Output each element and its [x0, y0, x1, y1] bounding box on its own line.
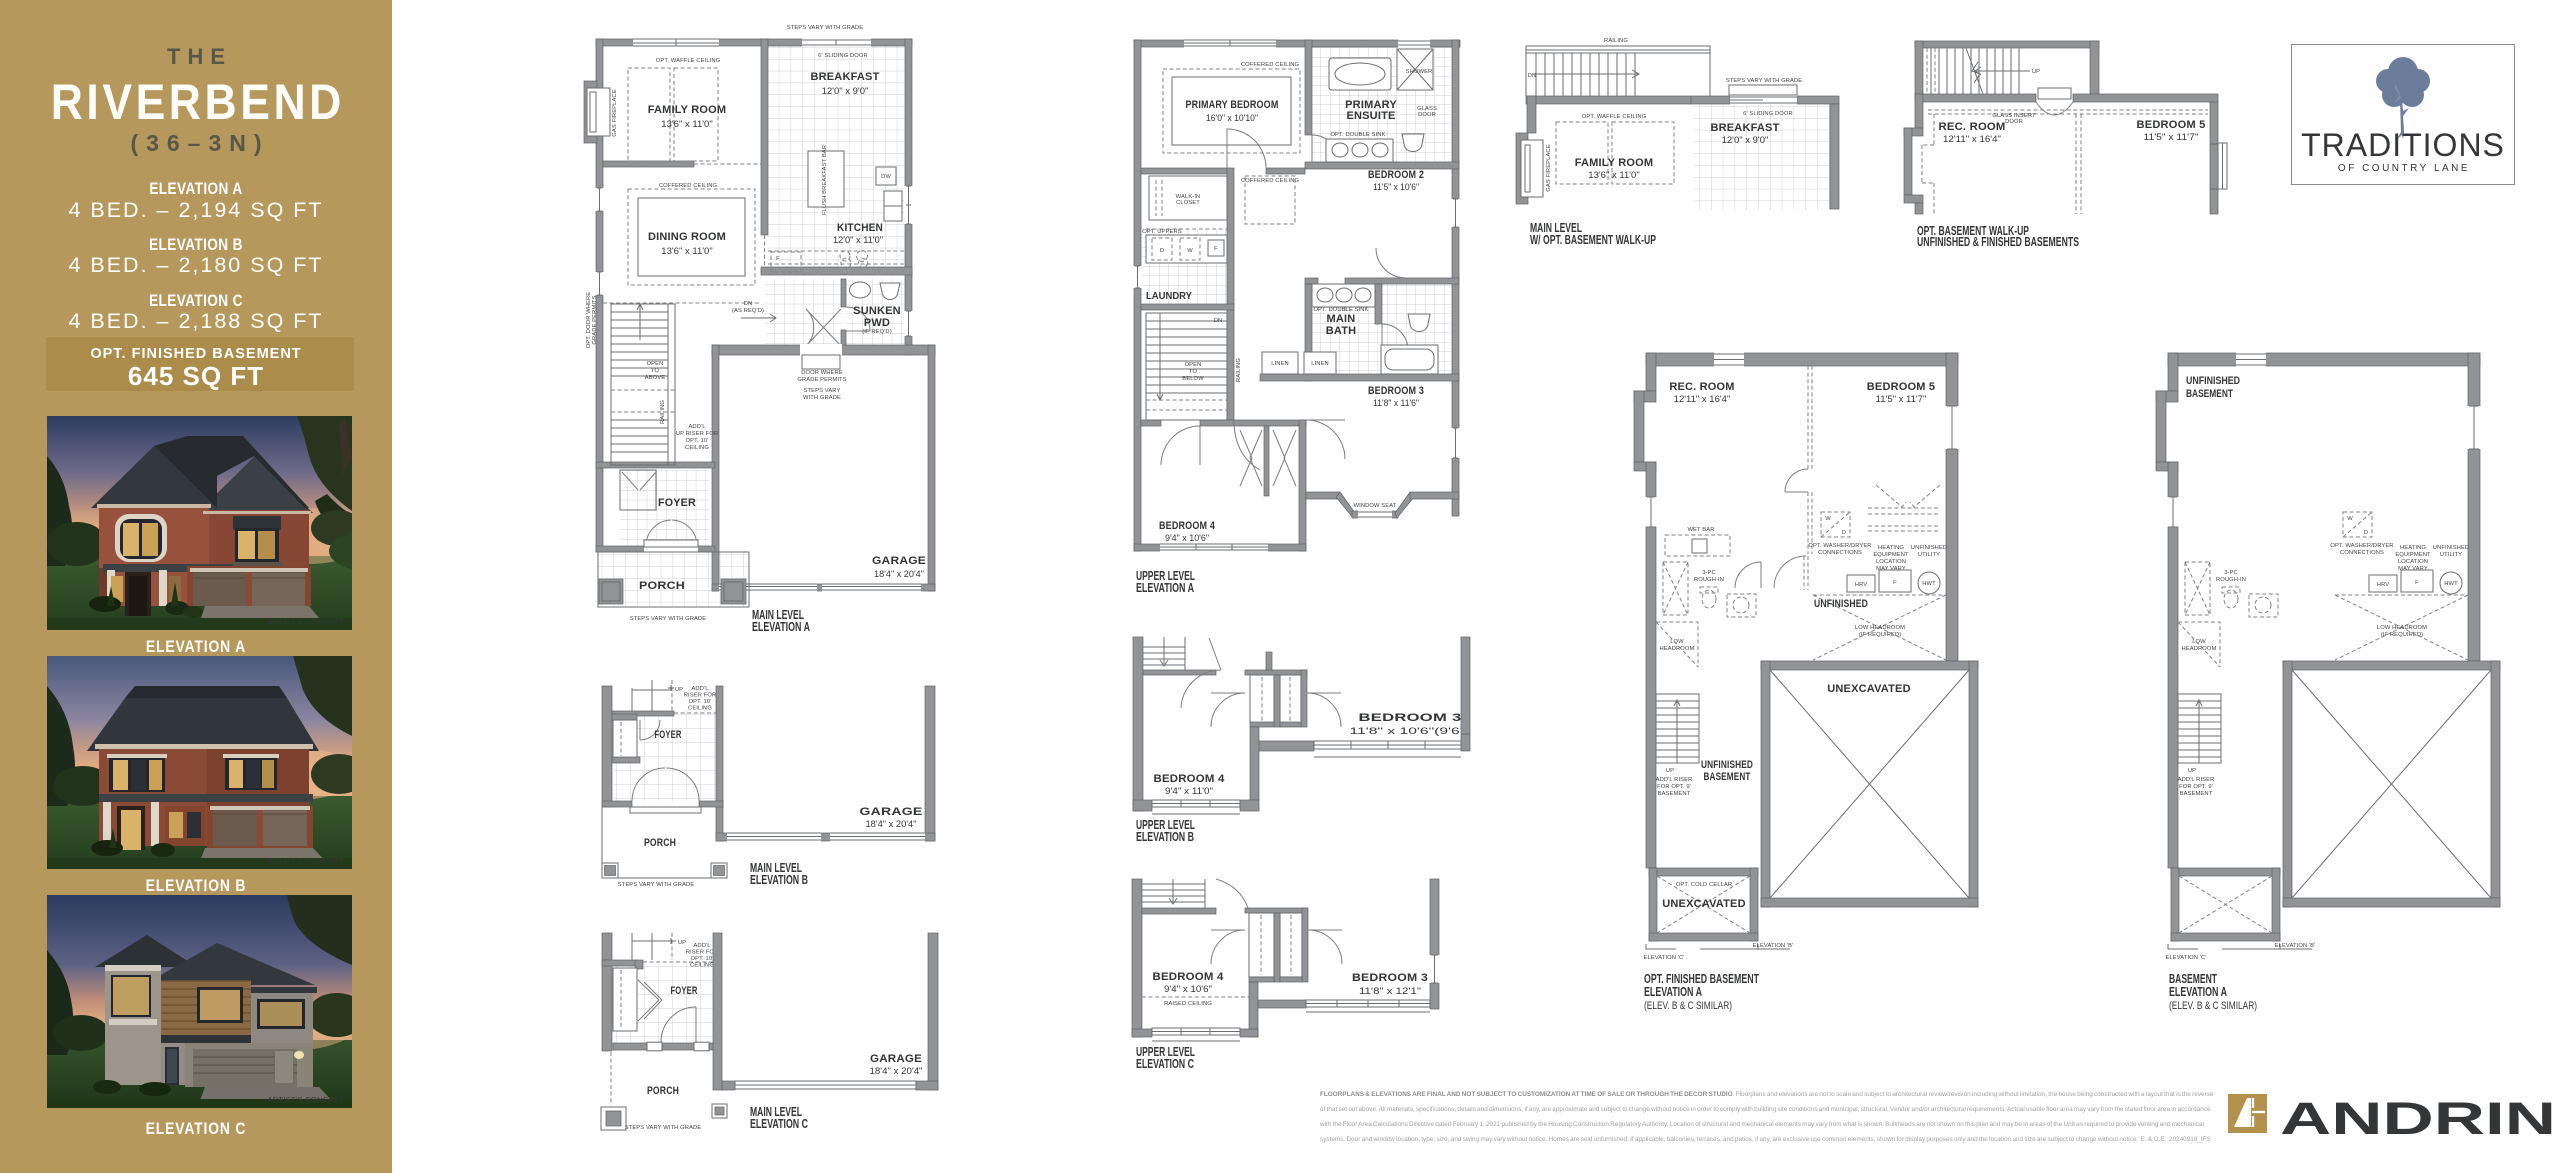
- svg-text:ARTIST'S CONCEPT: ARTIST'S CONCEPT: [267, 856, 344, 865]
- svg-text:FOYER: FOYER: [658, 497, 696, 509]
- svg-text:ELEVATION B: ELEVATION B: [1136, 829, 1194, 844]
- svg-text:CEILING: CEILING: [685, 445, 709, 451]
- svg-text:COFFERED CEILING: COFFERED CEILING: [1241, 178, 1300, 184]
- svg-text:SHOWER: SHOWER: [1406, 69, 1433, 75]
- svg-text:OPT. 10': OPT. 10': [689, 699, 712, 705]
- svg-text:(IF REQUIRED): (IF REQUIRED): [1859, 632, 1902, 638]
- svg-text:TRADITIONS: TRADITIONS: [2301, 127, 2505, 163]
- svg-text:OPT. WASHER/DRYER: OPT. WASHER/DRYER: [1808, 543, 1871, 549]
- svg-text:F: F: [1893, 580, 1897, 586]
- svg-text:ELEVATION A: ELEVATION A: [2169, 984, 2227, 999]
- svg-text:EQUIPMENT: EQUIPMENT: [1873, 552, 1909, 558]
- svg-text:6' SLIDING DOOR: 6' SLIDING DOOR: [1743, 111, 1793, 117]
- svg-text:13'6" x 11'0": 13'6" x 11'0": [661, 246, 712, 257]
- svg-text:OF COUNTRY LANE: OF COUNTRY LANE: [2338, 163, 2470, 174]
- svg-text:ADD'L: ADD'L: [691, 686, 709, 692]
- svg-text:ELEVATION A: ELEVATION A: [752, 619, 810, 634]
- svg-text:W: W: [1187, 248, 1193, 254]
- svg-text:ARTIST'S CONCEPT: ARTIST'S CONCEPT: [267, 617, 344, 626]
- svg-text:RAILING: RAILING: [1236, 358, 1242, 382]
- svg-text:W: W: [1825, 516, 1831, 522]
- svg-text:TO: TO: [651, 368, 660, 374]
- svg-text:ELEVATION A: ELEVATION A: [1136, 580, 1194, 595]
- svg-text:OPT. 10': OPT. 10': [691, 956, 714, 962]
- svg-text:GRADE PERMITS: GRADE PERMITS: [592, 295, 598, 344]
- svg-text:DOOR: DOOR: [1418, 112, 1436, 118]
- svg-text:9'4" x 10'6": 9'4" x 10'6": [1165, 533, 1209, 544]
- svg-text:11'5" x 11'7": 11'5" x 11'7": [1876, 394, 1927, 405]
- svg-text:COFFERED CEILING: COFFERED CEILING: [1241, 62, 1300, 68]
- svg-text:UP: UP: [1666, 768, 1674, 774]
- svg-text:RAILING: RAILING: [660, 400, 666, 424]
- svg-text:PRIMARY BEDROOM: PRIMARY BEDROOM: [1186, 99, 1279, 111]
- svg-text:ELEVATION B: ELEVATION B: [750, 872, 808, 887]
- svg-text:ADD'L RISER: ADD'L RISER: [1656, 777, 1693, 783]
- svg-text:LAUNDRY: LAUNDRY: [1146, 291, 1192, 302]
- svg-text:BASEMENT: BASEMENT: [2186, 388, 2233, 400]
- svg-text:11'8" x 10'6"(9'6"): 11'8" x 10'6"(9'6"): [1350, 726, 1471, 737]
- svg-text:9'4" x 11'0": 9'4" x 11'0": [1165, 786, 1213, 797]
- svg-text:RAISED CEILING: RAISED CEILING: [1164, 1001, 1212, 1007]
- svg-text:UP RISER FOR: UP RISER FOR: [676, 431, 718, 437]
- svg-text:HEADROOM: HEADROOM: [1660, 646, 1695, 652]
- svg-text:STEPS VARY WITH GRADE: STEPS VARY WITH GRADE: [625, 1125, 702, 1131]
- svg-text:ROUGH-IN: ROUGH-IN: [1694, 577, 1724, 583]
- svg-text:STEPS VARY WITH GRADE: STEPS VARY WITH GRADE: [630, 616, 707, 622]
- svg-text:FOYER: FOYER: [671, 985, 698, 997]
- svg-text:11'5" x 11'7": 11'5" x 11'7": [2144, 132, 2199, 143]
- svg-text:GAS FIREPLACE: GAS FIREPLACE: [612, 89, 618, 136]
- svg-text:18'4" x 20'4": 18'4" x 20'4": [874, 569, 924, 580]
- svg-text:CONNECTIONS: CONNECTIONS: [1818, 550, 1862, 556]
- svg-text:OPT. 10': OPT. 10': [686, 438, 709, 444]
- svg-text:CEILING: CEILING: [688, 706, 712, 712]
- svg-text:ENSUITE: ENSUITE: [1346, 110, 1395, 122]
- svg-text:UTILITY: UTILITY: [1918, 552, 1940, 558]
- svg-text:12'0" x 9'0": 12'0" x 9'0": [822, 86, 869, 97]
- svg-text:ABOVE: ABOVE: [645, 375, 666, 381]
- svg-text:RISER FOR: RISER FOR: [684, 693, 716, 699]
- svg-text:GARAGE: GARAGE: [872, 555, 926, 567]
- svg-text:OPT. UPPERS: OPT. UPPERS: [1142, 229, 1181, 235]
- svg-text:HWT: HWT: [1922, 581, 1936, 587]
- svg-text:GRADE PERMITS: GRADE PERMITS: [797, 377, 846, 383]
- svg-text:DINING ROOM: DINING ROOM: [648, 231, 726, 243]
- svg-text:DN: DN: [1528, 73, 1537, 79]
- svg-text:(ELEV. B & C SIMILAR): (ELEV. B & C SIMILAR): [2169, 1000, 2257, 1012]
- svg-text:FAMILY ROOM: FAMILY ROOM: [1575, 157, 1654, 169]
- svg-text:12'11" x 16'4": 12'11" x 16'4": [1943, 134, 2001, 145]
- svg-text:9'4" x 10'6": 9'4" x 10'6": [1164, 984, 1212, 995]
- svg-text:GAS FIREPLACE: GAS FIREPLACE: [1546, 144, 1552, 191]
- svg-text:GARAGE: GARAGE: [870, 1053, 922, 1065]
- svg-text:ADD'L: ADD'L: [693, 943, 711, 949]
- svg-text:CEILING: CEILING: [690, 963, 714, 969]
- svg-text:UP: UP: [678, 940, 686, 946]
- svg-text:BREAKFAST: BREAKFAST: [810, 71, 879, 83]
- svg-text:LOW: LOW: [1670, 639, 1684, 645]
- svg-text:FLUSH BREAKFAST BAR: FLUSH BREAKFAST BAR: [822, 145, 828, 215]
- svg-text:OPT. DOUBLE SINK: OPT. DOUBLE SINK: [1330, 132, 1385, 138]
- svg-text:SUNKEN: SUNKEN: [853, 305, 901, 317]
- svg-text:HRV: HRV: [1855, 582, 1867, 588]
- svg-text:STEPS VARY WITH GRADE: STEPS VARY WITH GRADE: [618, 882, 695, 888]
- svg-text:DOOR: DOOR: [2005, 119, 2023, 125]
- svg-text:OPEN: OPEN: [1185, 362, 1202, 368]
- svg-text:18'4" x 20'4": 18'4" x 20'4": [870, 1066, 923, 1077]
- svg-text:ADD'L: ADD'L: [688, 424, 706, 430]
- svg-text:12'0" x 11'0": 12'0" x 11'0": [833, 235, 883, 246]
- svg-text:TO: TO: [1189, 369, 1198, 375]
- svg-text:F: F: [776, 256, 780, 262]
- svg-text:ELEVATION C: ELEVATION C: [1136, 1056, 1194, 1071]
- svg-text:FOR OPT. 9': FOR OPT. 9': [1657, 784, 1691, 790]
- svg-text:FAMILY ROOM: FAMILY ROOM: [648, 104, 727, 116]
- svg-text:DN: DN: [1214, 318, 1223, 324]
- svg-text:D: D: [1160, 248, 1164, 254]
- svg-text:UNFINISHED: UNFINISHED: [1701, 759, 1753, 771]
- svg-text:BASEMENT: BASEMENT: [1704, 771, 1751, 783]
- svg-text:BEDROOM 3: BEDROOM 3: [1352, 972, 1428, 984]
- svg-text:BEDROOM 4: BEDROOM 4: [1159, 520, 1216, 532]
- svg-text:FOYER: FOYER: [655, 729, 682, 741]
- svg-text:BATH: BATH: [1326, 325, 1357, 337]
- svg-text:BEDROOM 2: BEDROOM 2: [1368, 169, 1424, 181]
- svg-text:ELEVATION A: ELEVATION A: [1644, 984, 1702, 999]
- svg-text:UP: UP: [675, 687, 683, 693]
- svg-text:BEDROOM 4: BEDROOM 4: [1154, 773, 1226, 785]
- svg-text:W/ OPT. BASEMENT WALK-UP: W/ OPT. BASEMENT WALK-UP: [1530, 232, 1656, 247]
- svg-text:16'0" x 10'10": 16'0" x 10'10": [1206, 113, 1258, 124]
- svg-text:RAILING: RAILING: [1604, 38, 1628, 44]
- svg-text:LINEN: LINEN: [1311, 361, 1329, 367]
- svg-text:BREAKFAST: BREAKFAST: [1710, 122, 1779, 134]
- svg-text:REC. ROOM: REC. ROOM: [1669, 381, 1734, 393]
- svg-text:BELOW: BELOW: [1182, 376, 1204, 382]
- svg-text:UNEXCAVATED: UNEXCAVATED: [1662, 898, 1745, 910]
- svg-text:18'4" x 20'4": 18'4" x 20'4": [866, 819, 917, 830]
- svg-text:OPEN: OPEN: [647, 361, 664, 367]
- svg-text:UNEXCAVATED: UNEXCAVATED: [1827, 683, 1910, 695]
- svg-text:ELEVATION 'C': ELEVATION 'C': [1644, 955, 1685, 961]
- svg-text:PWD: PWD: [864, 317, 890, 329]
- svg-text:STEPS VARY WITH GRADE: STEPS VARY WITH GRADE: [787, 25, 864, 31]
- svg-text:CLOSET: CLOSET: [1176, 200, 1200, 206]
- svg-text:GARAGE: GARAGE: [860, 806, 923, 818]
- svg-text:HEATING: HEATING: [1878, 545, 1904, 551]
- svg-text:11'8" x 11'6": 11'8" x 11'6": [1373, 398, 1419, 409]
- svg-text:UP: UP: [2032, 69, 2040, 75]
- svg-text:F: F: [1214, 246, 1218, 252]
- svg-text:ARTIST'S CONCEPT: ARTIST'S CONCEPT: [267, 1095, 344, 1104]
- svg-text:PORCH: PORCH: [639, 580, 685, 592]
- svg-text:ANDRIN: ANDRIN: [2280, 1093, 2556, 1144]
- svg-text:LOCATION: LOCATION: [1876, 559, 1906, 565]
- svg-text:12'11" x 16'4": 12'11" x 16'4": [1674, 394, 1731, 405]
- svg-text:BEDROOM 5: BEDROOM 5: [2137, 119, 2206, 131]
- svg-text:WINDOW SEAT: WINDOW SEAT: [1354, 503, 1397, 509]
- svg-text:REC. ROOM: REC. ROOM: [1939, 121, 2006, 133]
- svg-text:BEDROOM 3: BEDROOM 3: [1368, 385, 1424, 397]
- svg-text:DN: DN: [744, 301, 753, 307]
- svg-text:UNFINISHED: UNFINISHED: [2186, 375, 2240, 387]
- svg-text:KITCHEN: KITCHEN: [837, 222, 883, 234]
- svg-text:D: D: [1842, 530, 1846, 536]
- svg-text:13'6" x 11'0": 13'6" x 11'0": [661, 119, 712, 130]
- svg-text:DW: DW: [881, 174, 891, 180]
- svg-text:13'6" x 11'0": 13'6" x 11'0": [1588, 170, 1639, 181]
- svg-text:WET BAR: WET BAR: [1687, 527, 1714, 533]
- svg-text:COFFERED CEILING: COFFERED CEILING: [659, 183, 718, 189]
- svg-text:BEDROOM 3: BEDROOM 3: [1359, 712, 1462, 724]
- svg-text:WITH GRADE: WITH GRADE: [803, 395, 841, 401]
- svg-text:OPT. WAFFLE CEILING: OPT. WAFFLE CEILING: [1582, 114, 1647, 120]
- svg-text:OPT. WAFFLE CEILING: OPT. WAFFLE CEILING: [656, 58, 721, 64]
- svg-text:ELEVATION 'B': ELEVATION 'B': [1753, 943, 1794, 949]
- svg-text:(ELEV. B & C SIMILAR): (ELEV. B & C SIMILAR): [1644, 1000, 1732, 1012]
- svg-text:STEPS VARY: STEPS VARY: [804, 388, 841, 394]
- svg-text:6' SLIDING DOOR: 6' SLIDING DOOR: [818, 53, 868, 59]
- svg-text:(IF REQ'D): (IF REQ'D): [862, 329, 891, 335]
- svg-text:OPT. COLD CELLAR: OPT. COLD CELLAR: [1676, 882, 1732, 888]
- svg-text:BASEMENT: BASEMENT: [1658, 791, 1691, 797]
- svg-text:3-PC: 3-PC: [1702, 570, 1716, 576]
- svg-text:PORCH: PORCH: [644, 837, 676, 849]
- svg-text:LOW HEADROOM: LOW HEADROOM: [1855, 625, 1905, 631]
- svg-text:LINEN: LINEN: [1271, 361, 1289, 367]
- svg-text:11'5" x 10'6": 11'5" x 10'6": [1373, 182, 1419, 193]
- svg-text:(AS REQ'D): (AS REQ'D): [732, 308, 764, 314]
- svg-text:DOOR WHERE: DOOR WHERE: [801, 370, 843, 376]
- svg-text:ELEVATION C: ELEVATION C: [750, 1116, 808, 1131]
- svg-text:UNFINISHED: UNFINISHED: [1814, 598, 1868, 610]
- svg-text:MAIN: MAIN: [1327, 313, 1356, 325]
- svg-text:PORCH: PORCH: [647, 1085, 679, 1097]
- svg-text:BEDROOM 5: BEDROOM 5: [1867, 381, 1935, 393]
- svg-text:STEPS VARY WITH GRADE: STEPS VARY WITH GRADE: [1726, 78, 1803, 84]
- svg-text:12'0" x 9'0": 12'0" x 9'0": [1722, 135, 1769, 146]
- svg-text:BEDROOM 4: BEDROOM 4: [1153, 971, 1225, 983]
- svg-text:UNFINISHED & FINISHED BASEMENT: UNFINISHED & FINISHED BASEMENTS: [1917, 234, 2079, 249]
- svg-text:11'8" x 12'1": 11'8" x 12'1": [1359, 986, 1421, 997]
- svg-text:UNFINISHED: UNFINISHED: [1911, 545, 1947, 551]
